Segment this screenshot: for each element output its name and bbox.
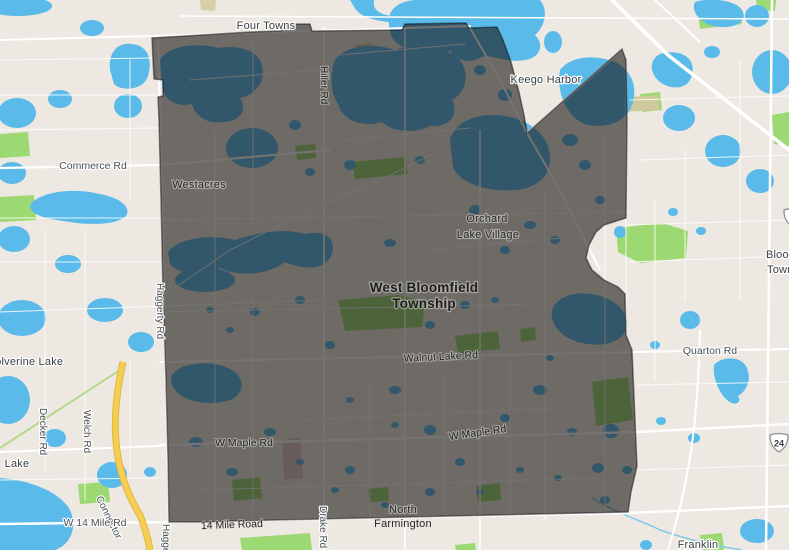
us-24-shield-number: 24 bbox=[774, 439, 784, 449]
place-label-keego-harbor: Keego Harbor bbox=[511, 74, 582, 86]
place-label-north-farmington-line1: North bbox=[389, 504, 417, 516]
road-label-w-maple-rd-west: W Maple Rd bbox=[215, 437, 273, 449]
place-label-four-towns: Four Towns bbox=[237, 20, 296, 32]
place-label-westacres: Westacres bbox=[172, 179, 226, 191]
road-label-welch-rd: Welch Rd bbox=[81, 410, 92, 453]
place-label-north-farmington-line2: Farmington bbox=[374, 518, 432, 530]
place-label-wolverine-lake: Wolverine Lake bbox=[0, 356, 63, 368]
place-label-franklin: Franklin bbox=[678, 539, 719, 550]
place-label-bloomfield-township-line1: Bloomfield bbox=[766, 249, 789, 261]
place-label-west-bloomfield-line2: Township bbox=[392, 296, 456, 311]
map-viewport[interactable]: Four Towns Keego Harbor Westacres Orchar… bbox=[0, 0, 789, 550]
road-label-14-mile-road: 14 Mile Road bbox=[201, 518, 263, 532]
road-label-drake-rd: Drake Rd bbox=[317, 506, 328, 548]
place-label-west-bloomfield-line1: West Bloomfield bbox=[370, 280, 479, 295]
road-label-quarton-rd: Quarton Rd bbox=[683, 345, 737, 357]
road-label-commerce-rd: Commerce Rd bbox=[59, 160, 127, 172]
place-label-orchard-lake-village-line1: Orchard bbox=[466, 213, 507, 225]
road-label-decker-rd: Decker Rd bbox=[37, 408, 48, 455]
road-label-w-14-mile-rd: W 14 Mile Rd bbox=[63, 517, 126, 529]
road-label-haggerty-rd: Haggerty Rd bbox=[154, 283, 165, 339]
place-label-orchard-lake-village-line2: Lake Village bbox=[457, 229, 519, 241]
road-label-hiller-rd: Hiller Rd bbox=[318, 66, 329, 104]
place-label-bloomfield-township-line2: Township bbox=[767, 264, 789, 276]
place-label-lake: Lake bbox=[5, 458, 30, 470]
map-canvas[interactable]: Four Towns Keego Harbor Westacres Orchar… bbox=[0, 0, 789, 550]
road-label-haggerty-rd-south: Haggerty Rd bbox=[160, 524, 171, 550]
